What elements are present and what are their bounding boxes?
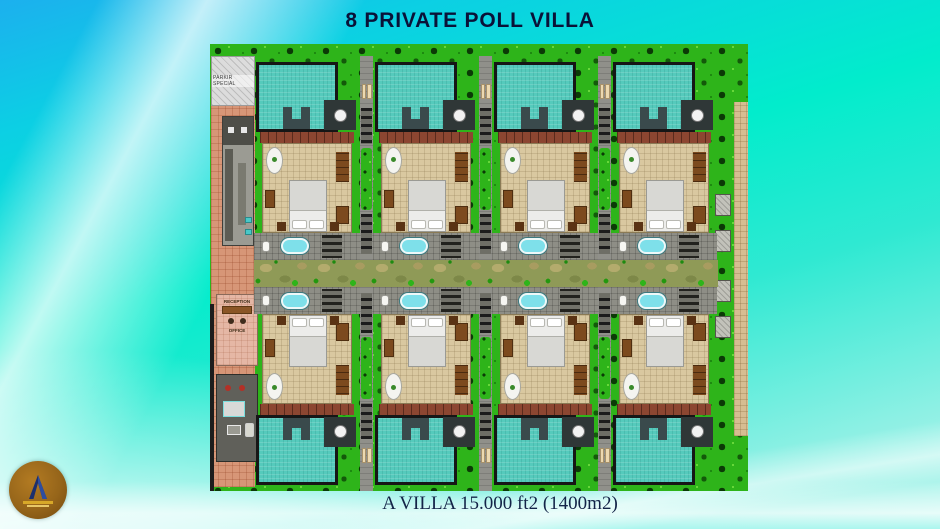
pool-pavilion <box>324 100 356 130</box>
bedroom <box>500 314 590 404</box>
pool-pavilion <box>324 417 356 447</box>
corridor-steps <box>480 293 491 333</box>
villa-unit <box>492 56 598 260</box>
pillow <box>649 318 664 327</box>
bathtub <box>623 373 640 400</box>
pool-step <box>658 418 667 440</box>
pool-step <box>649 418 658 428</box>
storage-unit <box>227 425 241 435</box>
corridor-steps <box>599 293 610 333</box>
side-table <box>396 222 405 231</box>
pillow <box>530 318 545 327</box>
pool-step <box>420 418 429 440</box>
bed <box>527 315 565 367</box>
appliance <box>241 127 247 133</box>
pool-step <box>521 418 530 440</box>
round-table <box>334 426 347 439</box>
bathtub <box>385 373 402 400</box>
bedroom <box>381 314 471 404</box>
entry-courtyard <box>254 233 360 260</box>
wood-deck <box>379 132 473 143</box>
sink <box>245 217 252 223</box>
entry-steps <box>441 289 461 312</box>
bedroom <box>381 143 471 233</box>
corridor-steps <box>361 108 372 144</box>
toilet <box>500 295 508 306</box>
bedroom <box>262 314 352 404</box>
villa-unit <box>611 287 717 491</box>
reception-label: RECEPTION <box>224 299 250 304</box>
bathtub <box>504 147 521 174</box>
jacuzzi <box>519 293 547 309</box>
toilet <box>619 295 627 306</box>
shrub-bed <box>599 337 610 399</box>
bench <box>622 190 632 208</box>
pool-step <box>411 119 420 129</box>
entry-courtyard <box>254 287 360 314</box>
entry-steps <box>679 235 699 258</box>
pool-step <box>658 107 667 129</box>
wardrobe <box>336 152 349 182</box>
pool-step <box>301 107 310 129</box>
side-table <box>634 222 643 231</box>
bed-blanket <box>647 336 683 366</box>
entry-courtyard <box>373 233 479 260</box>
pool-step <box>539 418 548 440</box>
bed <box>646 315 684 367</box>
round-table <box>691 426 704 439</box>
pool-step <box>521 107 530 129</box>
bathtub <box>385 147 402 174</box>
bathtub <box>266 147 283 174</box>
pool-step <box>420 107 429 129</box>
bed-blanket <box>528 181 564 211</box>
wardrobe <box>455 152 468 182</box>
pool-step <box>539 107 548 129</box>
entry-courtyard <box>373 287 479 314</box>
pillow <box>649 220 664 229</box>
entry-steps <box>322 235 342 258</box>
villa-row-south <box>254 287 717 491</box>
armchair <box>336 323 349 341</box>
entry-corridor <box>479 56 492 260</box>
round-table <box>453 426 466 439</box>
corridor-steps <box>480 403 491 439</box>
laundry-unit <box>223 401 245 417</box>
bed-blanket <box>409 336 445 366</box>
pillow <box>411 220 426 229</box>
wood-deck <box>498 404 592 415</box>
wood-deck <box>498 132 592 143</box>
sink <box>245 229 252 235</box>
wardrobe <box>693 152 706 182</box>
villa-unit <box>373 56 479 260</box>
villa-unit <box>254 287 360 491</box>
entry-corridor <box>360 56 373 260</box>
area-caption: A VILLA 15.000 ft2 (1400m2) <box>30 493 940 515</box>
entry-corridor <box>360 287 373 491</box>
side-table <box>449 316 458 325</box>
jacuzzi <box>281 293 309 309</box>
round-table <box>453 109 466 122</box>
armchair <box>693 323 706 341</box>
bed-blanket <box>290 181 326 211</box>
bed <box>646 180 684 232</box>
pool-pavilion <box>562 417 594 447</box>
bed <box>408 180 446 232</box>
site-plan: PARKIR SPECIAL RECEPTION OFFICE <box>210 44 748 491</box>
pool-step <box>402 418 411 440</box>
bathtub <box>266 373 283 400</box>
bench <box>622 339 632 357</box>
side-table <box>449 222 458 231</box>
equipment <box>225 385 231 391</box>
pillow <box>547 220 562 229</box>
entry-courtyard <box>492 233 598 260</box>
jacuzzi <box>638 238 666 254</box>
pool-step <box>530 418 539 428</box>
bed-blanket <box>290 336 326 366</box>
wardrobe <box>336 365 349 395</box>
lounger <box>605 448 610 463</box>
shrub-bed <box>480 148 491 210</box>
side-table <box>515 316 524 325</box>
bedroom <box>500 143 590 233</box>
entry-steps <box>560 235 580 258</box>
entry-courtyard <box>611 233 717 260</box>
side-table <box>277 316 286 325</box>
reception-desk <box>222 306 252 314</box>
equipment <box>239 385 245 391</box>
parking-area: PARKIR SPECIAL <box>211 56 255 106</box>
entry-steps <box>560 289 580 312</box>
stone-pad <box>715 230 731 252</box>
pool-step <box>640 418 649 440</box>
pool-pavilion <box>681 417 713 447</box>
toilet <box>619 241 627 252</box>
corridor-steps <box>480 214 491 254</box>
boundary-wall <box>210 304 214 491</box>
entry-corridor <box>479 287 492 491</box>
pool-pavilion <box>562 100 594 130</box>
corridor-steps <box>599 403 610 439</box>
pillow <box>292 318 307 327</box>
reception-chairs <box>228 318 246 324</box>
pool-step <box>640 107 649 129</box>
bench <box>503 190 513 208</box>
round-table <box>334 109 347 122</box>
wardrobe <box>455 365 468 395</box>
bed-blanket <box>528 336 564 366</box>
entry-corridor <box>598 56 611 260</box>
side-table <box>634 316 643 325</box>
side-table <box>330 316 339 325</box>
side-table <box>330 222 339 231</box>
pool-step <box>402 107 411 129</box>
bedroom <box>262 143 352 233</box>
stone-pad <box>715 194 731 216</box>
wood-deck <box>379 404 473 415</box>
corridor-steps <box>599 214 610 254</box>
bathtub <box>623 147 640 174</box>
bed <box>289 180 327 232</box>
lounger <box>367 448 372 463</box>
villa-row-north <box>254 56 717 260</box>
bed-blanket <box>647 181 683 211</box>
pillow <box>666 220 681 229</box>
bed <box>527 180 565 232</box>
armchair <box>455 323 468 341</box>
corridor-steps <box>361 293 372 333</box>
lounger <box>481 84 486 99</box>
corridor-steps <box>599 108 610 144</box>
side-table <box>515 222 524 231</box>
villa-unit <box>611 56 717 260</box>
shrub-bed <box>361 337 372 399</box>
bed <box>408 315 446 367</box>
villa-unit <box>373 287 479 491</box>
pool-pavilion <box>681 100 713 130</box>
corridor-steps <box>480 108 491 144</box>
bed-blanket <box>409 181 445 211</box>
stone-pad <box>715 316 731 338</box>
lounger <box>600 84 605 99</box>
side-table <box>687 316 696 325</box>
round-table <box>572 426 585 439</box>
utility-room <box>216 374 258 462</box>
pillow <box>309 318 324 327</box>
bench <box>503 339 513 357</box>
side-table <box>277 222 286 231</box>
villa-unit <box>492 287 598 491</box>
kitchen-counter <box>225 149 233 241</box>
pool-step <box>283 418 292 440</box>
lounger <box>600 448 605 463</box>
shrub-bed <box>480 337 491 399</box>
pool-step <box>292 418 301 428</box>
pool-step <box>530 119 539 129</box>
wardrobe <box>574 365 587 395</box>
toilet <box>245 423 254 437</box>
appliance <box>228 127 234 133</box>
pillow <box>428 220 443 229</box>
entry-steps <box>441 235 461 258</box>
side-table <box>568 316 577 325</box>
bathtub <box>504 373 521 400</box>
jacuzzi <box>281 238 309 254</box>
jacuzzi <box>400 293 428 309</box>
pillow <box>411 318 426 327</box>
wardrobe <box>574 152 587 182</box>
bench <box>384 339 394 357</box>
central-garden-path <box>254 260 718 287</box>
pool-pavilion <box>443 100 475 130</box>
entry-courtyard <box>492 287 598 314</box>
shrub-bed <box>599 148 610 210</box>
toilet <box>262 295 270 306</box>
bench <box>384 190 394 208</box>
page-title: 8 PRIVATE POLL VILLA <box>0 9 940 33</box>
pool-pavilion <box>443 417 475 447</box>
shrub-bed <box>361 148 372 210</box>
lounger <box>486 448 491 463</box>
jacuzzi <box>638 293 666 309</box>
toilet <box>381 241 389 252</box>
bench <box>265 190 275 208</box>
wood-deck <box>260 132 354 143</box>
bed <box>289 315 327 367</box>
lounger <box>481 448 486 463</box>
entry-steps <box>322 289 342 312</box>
bedroom <box>619 314 709 404</box>
wardrobe <box>693 365 706 395</box>
pillow <box>309 220 324 229</box>
kitchen-island <box>238 163 246 225</box>
pillow <box>428 318 443 327</box>
office-label: OFFICE <box>229 328 246 333</box>
pillow <box>530 220 545 229</box>
lounger <box>605 84 610 99</box>
side-table <box>396 316 405 325</box>
pool-step <box>301 418 310 440</box>
entry-corridor <box>598 287 611 491</box>
corridor-steps <box>361 214 372 254</box>
pool-step <box>283 107 292 129</box>
pool-step <box>292 119 301 129</box>
entry-courtyard <box>611 287 717 314</box>
wood-deck <box>260 404 354 415</box>
round-table <box>691 109 704 122</box>
toilet <box>381 295 389 306</box>
pool-step <box>411 418 420 428</box>
jacuzzi <box>519 238 547 254</box>
wood-deck <box>617 404 711 415</box>
villa-unit <box>254 56 360 260</box>
bench <box>265 339 275 357</box>
pillow <box>666 318 681 327</box>
lounger <box>486 84 491 99</box>
side-table <box>568 222 577 231</box>
perimeter-path <box>734 102 748 436</box>
side-table <box>687 222 696 231</box>
lounger <box>367 84 372 99</box>
toilet <box>500 241 508 252</box>
pool-step <box>649 119 658 129</box>
jacuzzi <box>400 238 428 254</box>
armchair <box>574 323 587 341</box>
lounger <box>362 84 367 99</box>
toilet <box>262 241 270 252</box>
bedroom <box>619 143 709 233</box>
parking-label: PARKIR SPECIAL <box>212 75 254 87</box>
pillow <box>547 318 562 327</box>
reception-building: RECEPTION OFFICE <box>216 294 258 366</box>
kitchen-building <box>222 116 254 246</box>
corridor-steps <box>361 403 372 439</box>
pillow <box>292 220 307 229</box>
lounger <box>362 448 367 463</box>
wood-deck <box>617 132 711 143</box>
round-table <box>572 109 585 122</box>
entry-steps <box>679 289 699 312</box>
